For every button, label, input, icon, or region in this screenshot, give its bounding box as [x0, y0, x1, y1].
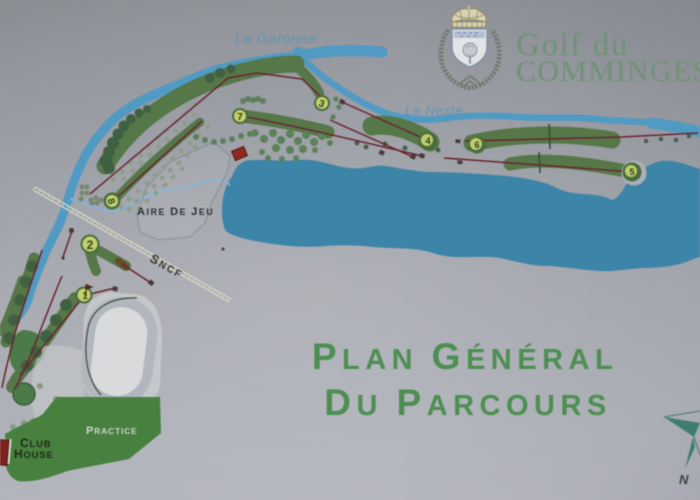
svg-text:La Neste: La Neste [405, 103, 463, 118]
svg-text:CLUB: CLUB [20, 436, 51, 450]
svg-text:7: 7 [237, 112, 243, 123]
svg-text:La Garonne: La Garonne [235, 30, 317, 46]
svg-text:2: 2 [87, 238, 94, 252]
svg-text:1: 1 [82, 291, 88, 302]
svg-text:AIRE DE JEU: AIRE DE JEU [137, 206, 214, 218]
svg-text:4: 4 [425, 136, 430, 146]
svg-text:HOUSE: HOUSE [14, 447, 54, 461]
svg-text:6: 6 [474, 140, 479, 150]
svg-text:PRACTICE: PRACTICE [86, 425, 138, 437]
svg-text:PLAN GÉNÉRAL: PLAN GÉNÉRAL [312, 336, 618, 377]
svg-text:SNCF: SNCF [148, 251, 186, 281]
svg-text:COMMINGES: COMMINGES [516, 55, 700, 88]
svg-text:5: 5 [629, 167, 634, 177]
svg-text:N: N [679, 472, 689, 487]
svg-text:DU PARCOURS: DU PARCOURS [324, 382, 612, 423]
